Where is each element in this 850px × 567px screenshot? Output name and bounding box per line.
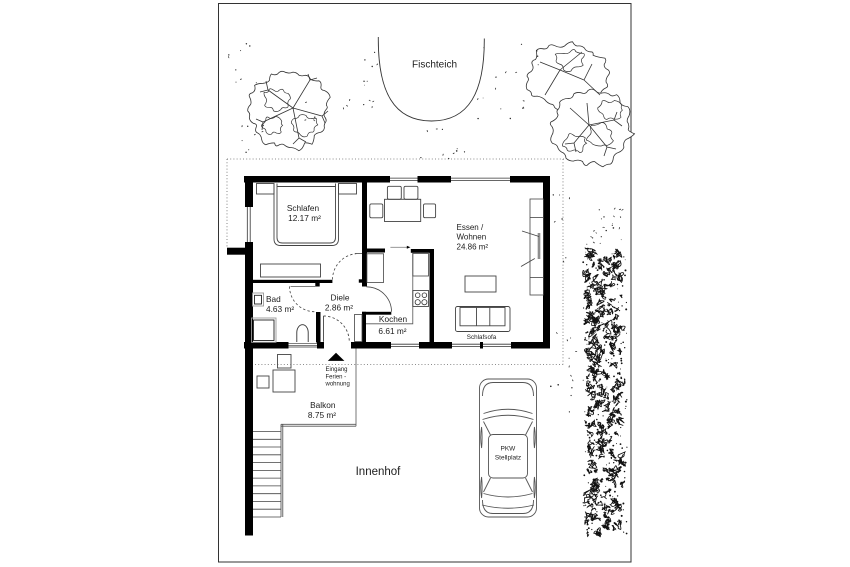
svg-text:Diele: Diele bbox=[331, 293, 350, 303]
svg-text:2.86 m²: 2.86 m² bbox=[325, 302, 353, 312]
svg-text:Wohnen: Wohnen bbox=[457, 233, 487, 242]
svg-text:6.61 m²: 6.61 m² bbox=[378, 326, 406, 336]
svg-text:12.17 m²: 12.17 m² bbox=[288, 213, 321, 223]
svg-text:Innenhof: Innenhof bbox=[356, 466, 402, 478]
svg-text:Essen /: Essen / bbox=[457, 223, 484, 232]
svg-text:Stellplatz: Stellplatz bbox=[495, 455, 521, 462]
svg-text:Fischteich: Fischteich bbox=[412, 60, 457, 71]
svg-text:Kochen: Kochen bbox=[379, 314, 408, 324]
svg-text:Ferien -: Ferien - bbox=[326, 374, 347, 380]
svg-text:Eingang: Eingang bbox=[326, 367, 348, 373]
svg-text:8.75 m²: 8.75 m² bbox=[308, 410, 336, 420]
svg-text:wohnung: wohnung bbox=[325, 382, 350, 388]
svg-text:Schlafen: Schlafen bbox=[287, 203, 320, 213]
svg-text:24.86 m²: 24.86 m² bbox=[457, 242, 489, 251]
svg-text:4.63 m²: 4.63 m² bbox=[266, 304, 294, 314]
svg-text:Balkon: Balkon bbox=[310, 400, 336, 410]
svg-text:PKW: PKW bbox=[500, 445, 516, 452]
svg-text:Schlafsofa: Schlafsofa bbox=[467, 334, 497, 341]
svg-text:Bad: Bad bbox=[266, 294, 281, 304]
